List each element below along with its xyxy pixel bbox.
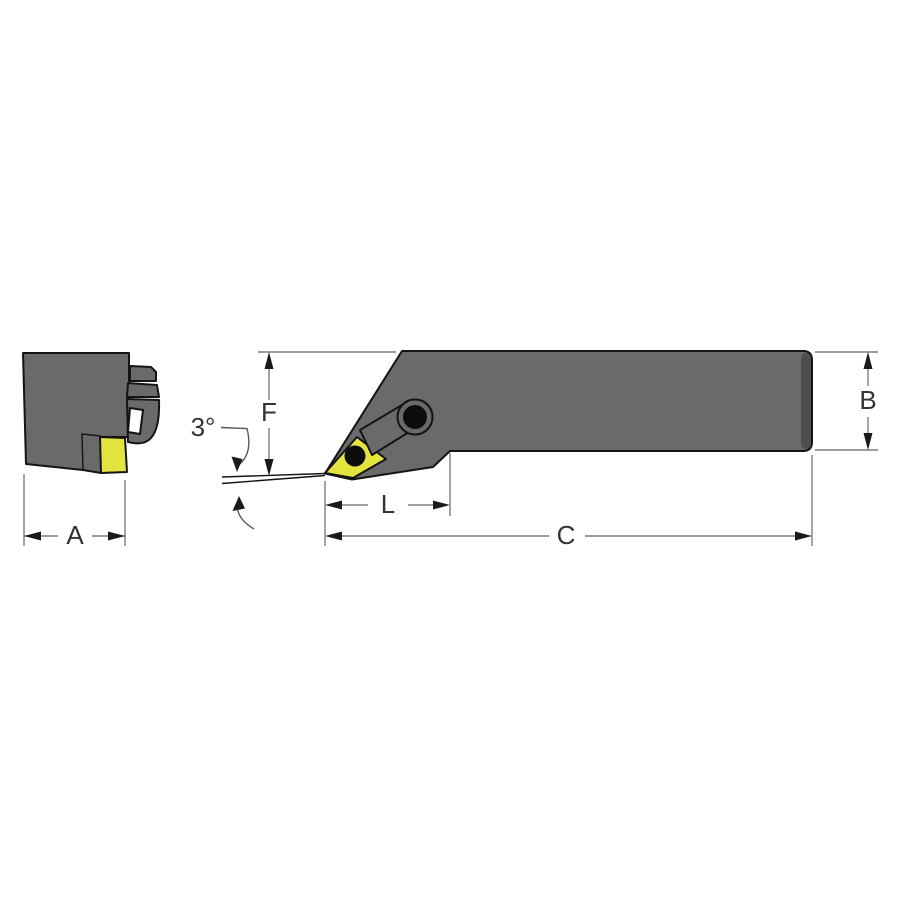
dim-c-arrow-left — [325, 532, 342, 541]
dim-f-label: F — [261, 397, 277, 427]
end-view — [23, 353, 159, 473]
end-view-clamp-slot — [128, 408, 143, 434]
dim-l-label: L — [381, 489, 395, 519]
dim-b: B — [815, 352, 878, 450]
dim-c-arrow-right — [795, 532, 812, 541]
side-view — [222, 351, 812, 484]
dim-a-label: A — [66, 520, 84, 550]
angle-label: 3° — [191, 412, 216, 442]
angle-arrow-up — [233, 496, 246, 511]
side-view-end-shade — [801, 353, 811, 449]
insert-hole — [345, 446, 366, 467]
dim-c-label: C — [557, 520, 576, 550]
angle-callout: 3° — [191, 412, 254, 529]
canvas: A F 3° L — [0, 0, 900, 900]
dim-l-arrow-left — [325, 501, 342, 510]
dim-f-arrow-up — [265, 352, 274, 369]
angle-arrow-down — [232, 457, 243, 473]
dim-l-arrow-right — [433, 501, 450, 510]
dim-a: A — [24, 474, 125, 550]
dim-b-label: B — [859, 385, 876, 415]
dim-b-arrow-up — [864, 352, 873, 369]
dim-f-arrow-down — [265, 459, 274, 476]
end-view-insert — [100, 437, 127, 473]
screw-hole — [403, 405, 427, 429]
dim-b-arrow-down — [864, 433, 873, 450]
tool-holder-drawing: A F 3° L — [0, 0, 900, 900]
dim-a-arrow-right — [108, 532, 125, 541]
dim-a-arrow-left — [24, 532, 41, 541]
end-view-clamp-top — [130, 366, 156, 381]
end-view-clamp-mid — [127, 383, 159, 397]
